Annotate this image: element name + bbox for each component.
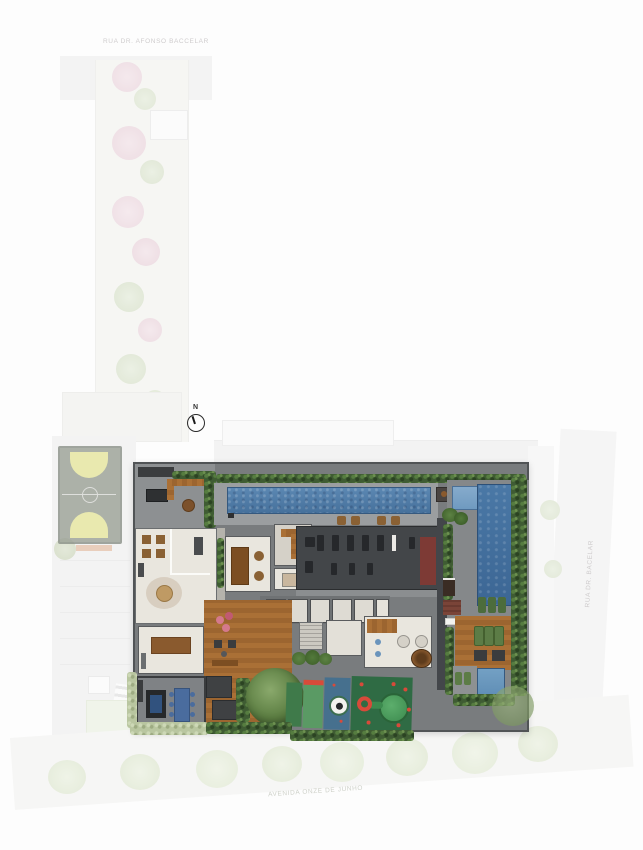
bush [454, 512, 468, 525]
sofa [138, 563, 144, 577]
play-mat-panel [323, 677, 350, 730]
gourmet-room [138, 626, 204, 674]
north-compass: N [184, 404, 212, 440]
lounge-armchair [156, 585, 173, 602]
games-room [136, 676, 206, 726]
bistro-table [254, 571, 264, 581]
cowork-table [156, 535, 165, 544]
upper-building-outline [222, 420, 394, 446]
reception-desk [194, 537, 203, 555]
sports-court [58, 446, 122, 544]
playground [285, 674, 412, 735]
court-arc-bottom [70, 512, 108, 538]
wood-path [167, 486, 174, 500]
pool-chair [377, 516, 386, 525]
shrub [305, 650, 320, 665]
play-dot [359, 682, 363, 686]
deck-armchair [214, 640, 222, 648]
spring-toy [357, 696, 372, 711]
tree [544, 560, 562, 578]
tree [140, 160, 164, 184]
shrub [319, 653, 332, 665]
games-chair [169, 702, 174, 707]
stairs [299, 622, 323, 650]
games-chair [190, 712, 195, 717]
parking-line [60, 560, 130, 561]
compass-circle [187, 414, 205, 432]
deck-seating-group [212, 700, 238, 720]
parking-line [60, 664, 130, 665]
interior-wall [170, 573, 210, 575]
pool-ladder [228, 513, 234, 518]
right-edge-hedge [511, 477, 527, 696]
pool-chair [337, 516, 346, 525]
treadmill [362, 535, 369, 551]
tree [196, 750, 238, 788]
garden-lounger [464, 672, 471, 685]
deck-lounger [484, 626, 494, 646]
spring-toy-center [361, 700, 368, 707]
parking-line [60, 586, 130, 587]
pool-chair [391, 516, 400, 525]
tree [320, 742, 364, 782]
cowork-table [156, 549, 165, 558]
play-mat-panel [285, 682, 302, 726]
tree [386, 738, 428, 776]
small-building-outline [88, 676, 110, 694]
tree [116, 354, 146, 384]
pouf [225, 612, 233, 620]
sun-lounger [488, 597, 496, 613]
treadmill [317, 535, 324, 551]
tree [138, 318, 162, 342]
north-label: N [193, 404, 198, 411]
planter-hedge [217, 538, 224, 588]
playground-hedge-bottom [290, 730, 414, 741]
play-dot [366, 720, 370, 724]
billiard-table [146, 690, 166, 718]
tree [540, 500, 560, 520]
ladybug-center [335, 702, 342, 709]
play-mat-panel [350, 676, 412, 734]
exercise-bike [349, 563, 355, 575]
lap-pool [227, 487, 431, 514]
small-building-outline [150, 110, 188, 140]
games-chair [190, 692, 195, 697]
kids-pool [452, 486, 480, 510]
play-mat-panel [302, 680, 323, 729]
play-dot [340, 720, 343, 723]
games-table [174, 688, 190, 722]
meeting-table [231, 547, 249, 585]
pouf [216, 616, 224, 624]
gym [296, 526, 440, 590]
pouf [222, 624, 230, 632]
parking-line [60, 638, 130, 639]
sun-lounger [498, 597, 506, 613]
dumbbell-rack [409, 537, 415, 549]
tree [48, 760, 86, 794]
hot-tub [411, 649, 432, 668]
deck-table-set [492, 650, 505, 661]
bench-strip [76, 545, 112, 551]
cowork-table [142, 549, 151, 558]
billiard-felt [150, 695, 162, 713]
interior-wall [170, 529, 172, 573]
play-dot [392, 682, 396, 686]
games-chair [169, 712, 174, 717]
terrace-round-table [182, 499, 195, 512]
sauna-bench [281, 529, 291, 537]
games-chair [169, 692, 174, 697]
parking-line [60, 612, 130, 613]
shrub [292, 652, 306, 665]
exercise-bike [367, 563, 373, 575]
corner-tree [492, 686, 534, 726]
exercise-bike [331, 563, 337, 575]
tree [120, 754, 160, 790]
site-plan-canvas: RUA DR. AFONSO BACCELAR [0, 0, 643, 850]
tree [112, 62, 142, 92]
tree [114, 282, 144, 312]
grill-counter [138, 467, 174, 477]
spa-table [397, 635, 410, 648]
deck-lounger [494, 626, 504, 646]
tree [132, 238, 160, 266]
play-mat-stripe [304, 680, 324, 686]
games-chair [190, 702, 195, 707]
treadmill [347, 535, 354, 551]
play-dot [403, 687, 407, 691]
leisure-pool [477, 484, 514, 606]
octopus-toy [379, 693, 410, 724]
play-dot [396, 723, 400, 727]
dining-table [151, 637, 191, 654]
treadmill [377, 535, 384, 551]
meeting-room [225, 536, 271, 592]
deck-lounger [474, 626, 484, 646]
bistro-table [254, 551, 264, 561]
spa-wood-floor [367, 619, 397, 633]
spa-table [415, 635, 428, 648]
deck-armchair [228, 640, 236, 648]
shrub-bed [292, 650, 334, 666]
cowork-table [142, 535, 151, 544]
treadmill [332, 535, 339, 551]
ladybug-toy [329, 695, 350, 716]
tree [452, 732, 498, 774]
terrace-table [146, 489, 168, 502]
tree [112, 196, 144, 228]
tree [112, 126, 146, 160]
deck-console [212, 660, 238, 666]
deck-hedge-bottom [206, 722, 292, 734]
gym-mat [420, 537, 436, 585]
tree [134, 88, 156, 110]
tree [262, 746, 302, 782]
plunge-bucket [375, 639, 381, 645]
deck-table-set [474, 650, 487, 661]
games-cabinet [138, 680, 143, 702]
garden-lounger [455, 672, 462, 685]
weight-machine [305, 561, 313, 573]
weight-machine [305, 537, 315, 547]
sideboard [141, 653, 146, 669]
outer-hedge-bottom [130, 722, 208, 735]
court-arc-top [70, 452, 108, 478]
spa-area [364, 616, 432, 668]
court-half-line [62, 494, 116, 495]
plunge-bucket [375, 651, 381, 657]
street-label-top: RUA DR. AFONSO BACCELAR [103, 38, 209, 45]
deck-seating-group [206, 676, 232, 698]
outer-hedge-left [127, 672, 137, 728]
play-dot [332, 684, 335, 687]
deck-side-table [221, 651, 227, 657]
pool-chair [351, 516, 360, 525]
gym-bench [392, 535, 396, 551]
sun-lounger [478, 597, 486, 613]
brick-pad [443, 600, 461, 615]
dark-planter [443, 578, 455, 596]
small-building-outline [62, 392, 182, 442]
court-center-circle [82, 487, 98, 503]
play-dot [407, 708, 411, 712]
